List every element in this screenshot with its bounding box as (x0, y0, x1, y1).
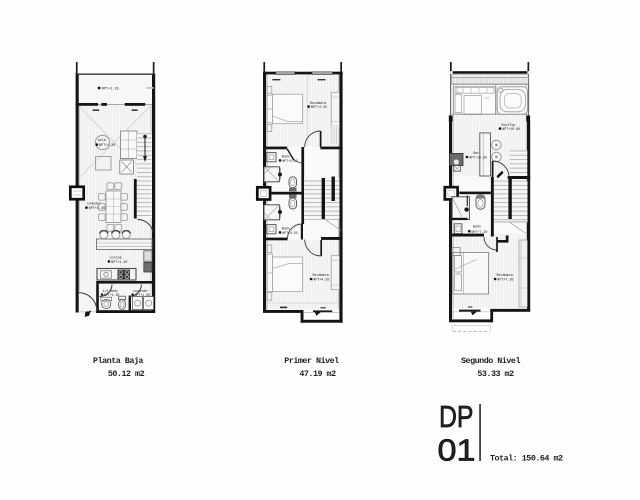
svg-text:NPT+1.30: NPT+1.30 (89, 207, 105, 211)
svg-text:NPT+10.80: NPT+10.80 (502, 127, 520, 131)
svg-text:comedor: comedor (87, 202, 101, 207)
svg-text:Primer Nivel: Primer Nivel (284, 356, 339, 366)
svg-text:Total: 150.64 m2: Total: 150.64 m2 (490, 453, 563, 463)
svg-text:NPT+1.30: NPT+1.30 (99, 144, 115, 148)
svg-text:Recámara: Recámara (313, 273, 329, 278)
svg-text:NPT+4.55: NPT+4.55 (311, 106, 327, 110)
svg-text:Planta Baja: Planta Baja (93, 356, 143, 366)
svg-text:53.33 m2: 53.33 m2 (477, 369, 514, 379)
svg-text:sala: sala (98, 138, 106, 143)
svg-text:DP: DP (439, 399, 474, 434)
svg-text:01: 01 (438, 432, 476, 467)
svg-text:Segundo Nivel: Segundo Nivel (461, 356, 520, 366)
svg-text:cocina: cocina (110, 255, 122, 260)
svg-text:NPT+7.30: NPT+7.30 (472, 230, 488, 234)
svg-text:NPT+4.55: NPT+4.55 (282, 231, 298, 235)
svg-text:NPT+1.25: NPT+1.25 (102, 88, 119, 92)
svg-text:Recámara: Recámara (497, 273, 513, 278)
svg-text:Baño: Baño (473, 225, 481, 229)
svg-text:NPT+4.55: NPT+4.55 (282, 159, 298, 163)
svg-text:Bar: Bar (473, 151, 479, 155)
svg-text:Recámara: Recámara (310, 101, 326, 106)
svg-text:Baño: Baño (282, 226, 290, 230)
svg-text:NPT+10.80: NPT+10.80 (469, 156, 487, 160)
svg-text:Baño: Baño (282, 154, 290, 158)
svg-text:NPT+1.30: NPT+1.30 (111, 261, 127, 265)
svg-text:NPT+4.55: NPT+4.55 (313, 279, 329, 283)
svg-text:47.19 m2: 47.19 m2 (299, 369, 336, 379)
svg-text:NPT+1.30: NPT+1.30 (104, 293, 119, 297)
svg-text:NPT+7.30: NPT+7.30 (497, 279, 513, 283)
svg-text:50.12 m2: 50.12 m2 (108, 369, 145, 379)
svg-text:RoofTop: RoofTop (502, 123, 516, 127)
